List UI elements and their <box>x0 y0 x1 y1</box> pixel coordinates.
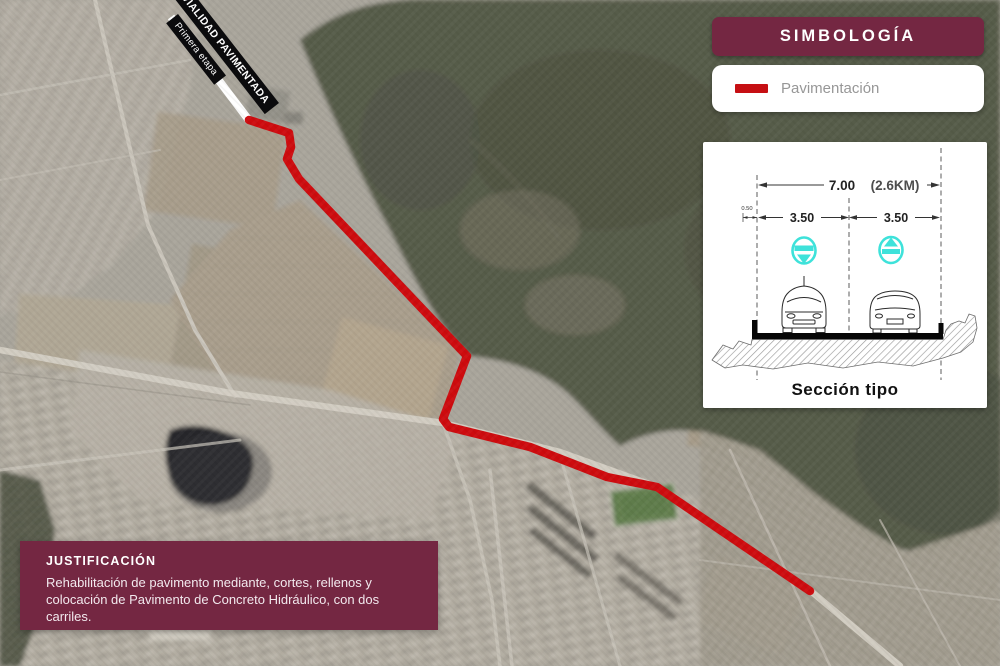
road-section-panel: 7.00 (2.6KM) 3.50 3.50 0 <box>703 142 987 408</box>
dimension-length-value: (2.6KM) <box>871 178 920 193</box>
ground-hatch <box>712 314 977 369</box>
legend-title: SIMBOLOGÍA <box>780 27 916 46</box>
lane-direction-symbol-up <box>880 237 903 263</box>
section-caption: Sección tipo <box>791 380 898 399</box>
dimension-lane-left-value: 3.50 <box>790 211 814 225</box>
road-section-drawing: 7.00 (2.6KM) 3.50 3.50 0 <box>703 142 987 408</box>
dimension-total-value: 7.00 <box>829 178 855 193</box>
legend-item-pavimentacion: Pavimentación <box>712 65 984 112</box>
pavement-line-swatch <box>735 84 768 93</box>
justification-panel: JUSTIFICACIÓN Rehabilitación de paviment… <box>20 541 438 630</box>
dimension-lane-right-value: 3.50 <box>884 211 908 225</box>
lane-direction-symbol-down <box>793 238 816 265</box>
legend-header: SIMBOLOGÍA <box>712 17 984 56</box>
justification-body: Rehabilitación de pavimento mediante, co… <box>46 575 422 626</box>
legend-item-label: Pavimentación <box>781 80 879 97</box>
slide: VIALIDAD PAVIMENTADA Primera etapa SIMBO… <box>0 0 1000 666</box>
justification-title: JUSTIFICACIÓN <box>46 554 422 568</box>
dimension-shoulder <box>743 213 757 222</box>
car-front-left <box>782 276 826 333</box>
dimension-shoulder-value: 0.50 <box>741 206 752 212</box>
car-front-right <box>870 291 920 333</box>
